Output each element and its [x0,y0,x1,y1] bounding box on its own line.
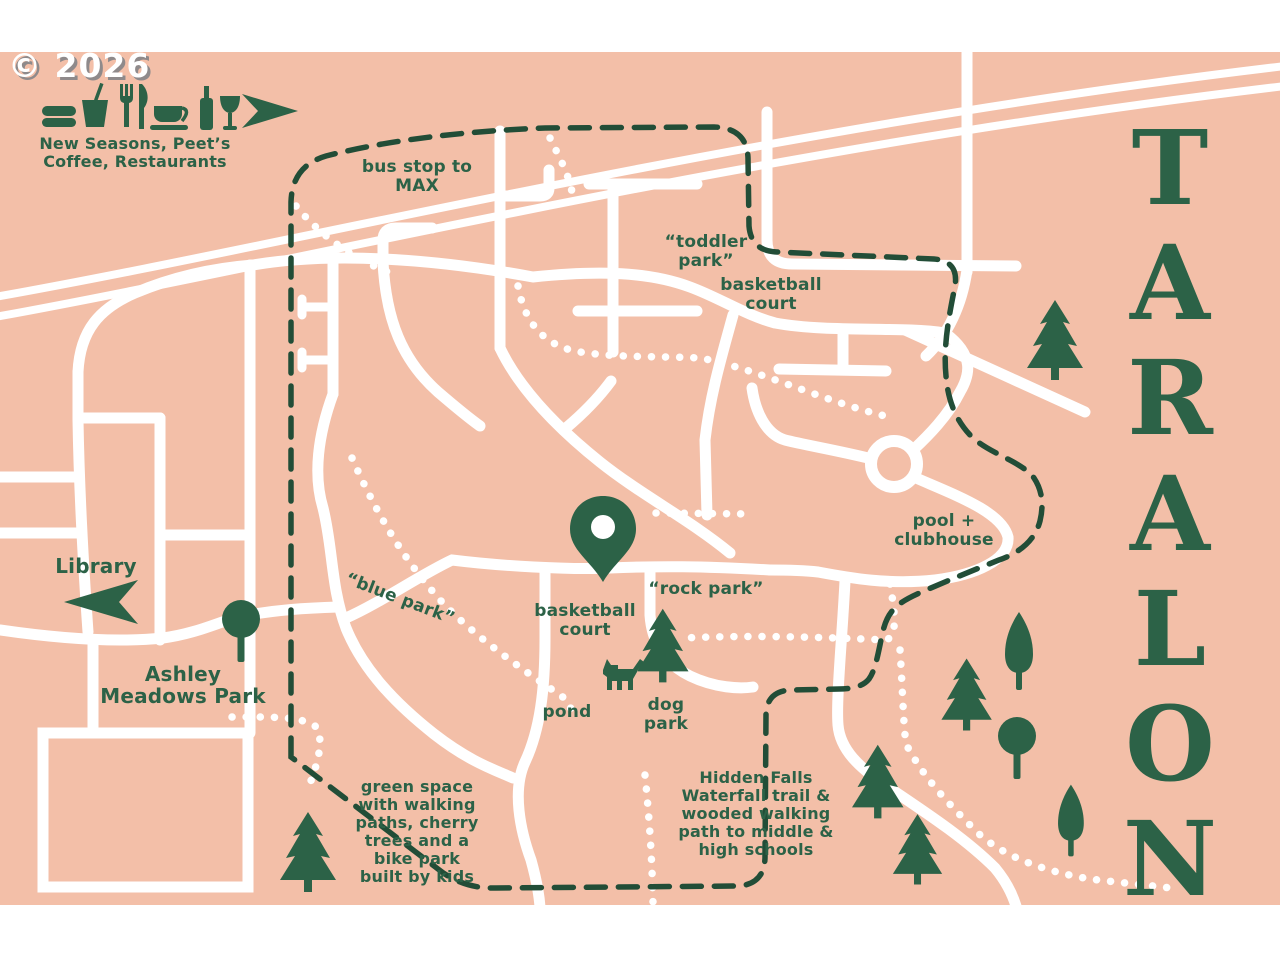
green-space-line: built by kids [356,868,479,886]
wine-glass-icon [228,113,232,126]
hidden-falls-line: high schools [678,841,833,859]
road [0,607,338,640]
road [779,369,886,371]
pine-tree-icon [280,812,336,892]
roundabout [871,441,917,487]
hidden-falls-label: Hidden Falls Waterfall trail & wooded wa… [678,769,833,859]
basketball-mid-line1: basketball [534,602,636,621]
amenities-line2: Coffee, Restaurants [39,153,230,171]
hidden-falls-line: path to middle & [678,823,833,841]
pine-tree-icon [852,745,904,819]
pine-tree-icon [941,659,991,731]
road [566,381,611,428]
bus-stop-line2: MAX [362,177,472,196]
amenities-line1: New Seasons, Peet’s [39,135,230,153]
pine-tree-icon [1027,300,1083,380]
trail [518,286,885,416]
toddler-park-line2: park” [665,252,748,271]
pool-line1: pool + [894,512,994,531]
title-letter: T [1132,122,1209,217]
wine-glass-icon [223,126,237,130]
ashley-meadows-label: Ashley Meadows Park [100,663,266,708]
trail [645,775,653,903]
road [383,262,480,426]
burger-icon [42,106,76,116]
hidden-falls-line: wooded walking [678,805,833,823]
amenity-icons [42,83,240,130]
pool-line2: clubhouse [894,531,994,550]
rock-park-label: “rock park” [648,580,763,599]
road-network [0,48,1280,907]
green-space-line: with walking [356,796,479,814]
road [43,733,248,887]
offsite-right-arrow-icon [242,94,298,128]
fork-icon [120,84,133,127]
coffee-cup-handle-icon [182,108,187,121]
basketball-top-line2: court [720,295,822,314]
hidden-falls-line: Hidden Falls [678,769,833,787]
library-label: Library [55,555,137,577]
title-letter: R [1127,352,1213,447]
title-letter: A [1130,237,1210,332]
community-title: T A R A L O N [1118,122,1222,908]
wine-glass-icon [220,96,240,113]
green-space-line: trees and a [356,832,479,850]
highway-line-inner [0,86,1280,317]
toddler-park-line1: “toddler [665,233,748,252]
title-letter: N [1123,813,1217,908]
knife-icon [139,84,148,129]
pond-label: pond [543,703,592,722]
coffee-cup-icon [154,106,182,122]
bus-stop-line1: bus stop to [362,158,472,177]
title-letter: A [1130,468,1210,563]
road [78,372,88,632]
road [78,265,253,372]
wine-bottle-icon [200,98,213,130]
straw-icon [94,83,103,101]
wine-bottle-icon [204,86,209,100]
hidden-falls-line: Waterfall trail & [678,787,833,805]
burger-icon [42,118,76,127]
copyright: © 2026 [8,48,150,85]
round-tree-icon [998,717,1036,779]
amenities-label: New Seasons, Peet’s Coffee, Restaurants [39,135,230,171]
drink-icon [82,100,108,127]
dog-park-label: dog park [644,696,688,734]
poplar-tree-icon [1058,785,1084,857]
basketball-court-top-label: basketball court [720,276,822,314]
green-space-line: bike park [356,850,479,868]
title-letter: L [1134,583,1206,678]
pool-clubhouse-label: pool + clubhouse [894,512,994,550]
neighborhood-map: © 2026 New Seasons, Peet’s Coffee, Resta… [0,0,1280,960]
road [500,170,549,196]
basketball-court-mid-label: basketball court [534,602,636,640]
basketball-mid-line2: court [534,621,636,640]
green-space-line: paths, cherry [356,814,479,832]
title-letter: O [1125,698,1215,793]
poplar-tree-icon [1005,612,1033,690]
dog-icon [603,659,644,690]
basketball-top-line1: basketball [720,276,822,295]
toddler-park-label: “toddler park” [665,233,748,271]
saucer-icon [150,125,188,130]
green-space-line: green space [356,778,479,796]
library-left-arrow-icon [64,580,138,624]
green-space-label: green space with walking paths, cherry t… [356,778,479,885]
road [752,388,868,458]
ashley-line1: Ashley [100,663,266,685]
road [705,315,733,515]
bus-stop-label: bus stop to MAX [362,158,472,196]
dog-park-line1: dog [644,696,688,715]
ashley-line2: Meadows Park [100,685,266,707]
dog-park-line2: park [644,715,688,734]
